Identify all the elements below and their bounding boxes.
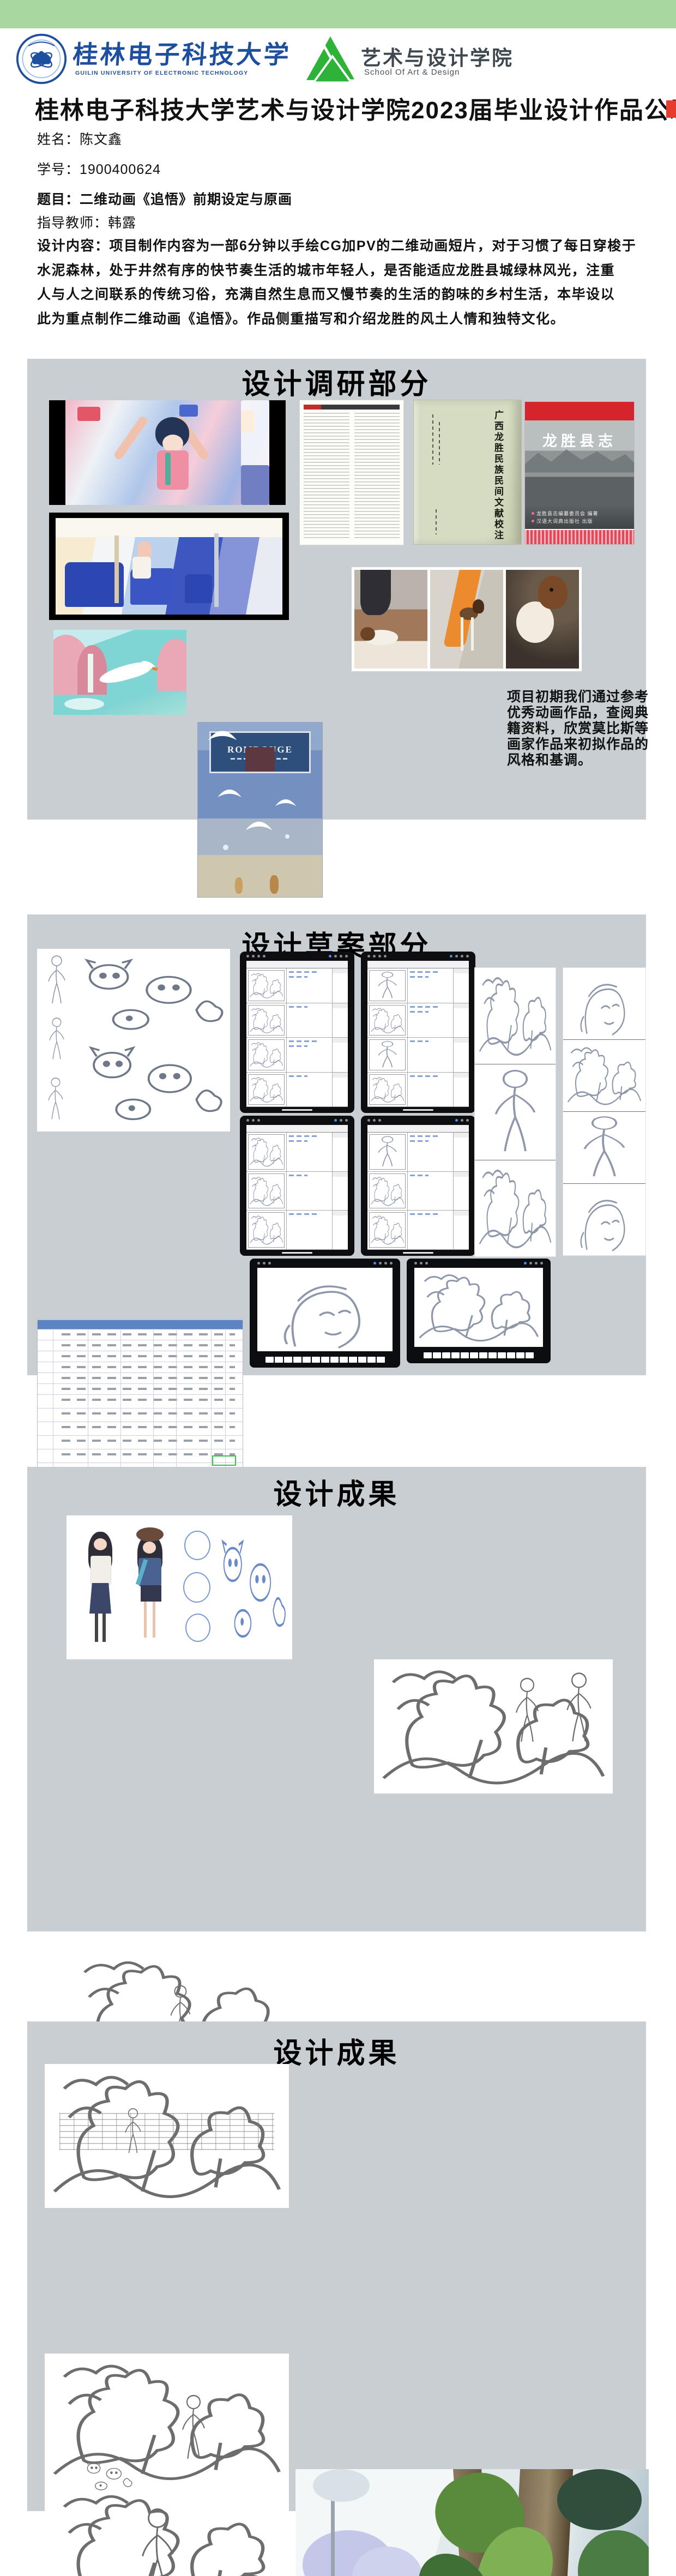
page-title: 桂林电子科技大学艺术与设计学院2023届毕业设计作品公示	[35, 91, 676, 125]
design-description: 设计内容：项目制作内容为一部6分钟以手绘CG加PV的二维动画短片，对于习惯了每日…	[37, 234, 672, 331]
lineart-street-crowd	[374, 1659, 613, 1793]
red-book-cover: 龙胜县志 龙胜县志编纂委员会 编著 汉语大词典出版社 出版	[524, 401, 635, 545]
drawing-tablet	[250, 1259, 400, 1368]
description-line: 水泥森林，处于井然有序的快节奏生活的城市年轻人，是否能适应龙胜县城绿林风光，注重	[37, 258, 672, 283]
section-title: 设计成果	[27, 1471, 646, 1512]
anime-girl-video-still	[49, 400, 286, 505]
university-emblem-icon	[15, 33, 68, 85]
romrouge-poster: ROMROUGE	[197, 722, 323, 898]
storyboard-comic-strip	[474, 967, 556, 1257]
color-art-big-tree	[295, 2469, 649, 2576]
lineart-mountain-path-girl-dog	[45, 2354, 289, 2576]
table-highlight-cell	[212, 1455, 236, 1466]
red-book-title: 龙胜县志	[525, 429, 634, 450]
university-name-zh: 桂林电子科技大学	[72, 35, 293, 71]
student-name: 姓名：陈文鑫	[37, 129, 122, 148]
drawing-tablet	[407, 1259, 551, 1363]
advisor-name: 指导教师：韩露	[37, 212, 136, 232]
red-book-credit: 龙胜县志编纂委员会 编著	[532, 510, 599, 517]
beagle-photo	[506, 570, 579, 669]
beagle-photo-strip	[352, 567, 582, 671]
description-line: 此为重点制作二维动画《追悟》。作品侧重描写和介绍龙胜的风土人情和独特文化。	[37, 307, 672, 332]
character-sketch-page	[37, 949, 230, 1131]
storyboard-tablet	[240, 1116, 354, 1256]
edge-red-mark	[666, 100, 676, 118]
beagle-photo	[430, 570, 503, 669]
section-research-panel: 设计调研部分	[27, 359, 646, 820]
section-draft-panel: 设计草案部分	[27, 914, 646, 1375]
crane-illustration	[53, 630, 186, 715]
research-note: 项目初期我们通过参考 优秀动画作品，查阅典 籍资料，欣赏莫比斯等 画家作品来初拟…	[507, 689, 666, 768]
student-id: 学号：1900400624	[37, 159, 161, 178]
green-book-cover: 广西龙胜民族民间文献校注	[413, 400, 522, 545]
beagle-photo	[354, 570, 427, 669]
newspaper-scan	[299, 400, 404, 545]
storyboard-tablet	[361, 1116, 475, 1256]
storyboard-tablet	[240, 952, 354, 1113]
storyboard-comic-strip	[563, 967, 646, 1256]
section-title: 设计调研部分	[27, 361, 646, 402]
university-name-en: GUILIN UNIVERSITY OF ELECTRONIC TECHNOLO…	[75, 70, 248, 76]
section-results-panel-2: 设计成果	[27, 2021, 646, 2511]
school-name-zh: 艺术与设计学院	[361, 41, 514, 71]
red-book-credit: 汉语大词典出版社 出版	[532, 517, 593, 525]
lineart-bridge-pavilion	[45, 2064, 289, 2208]
green-book-title: 广西龙胜民族民间文献校注	[491, 410, 505, 541]
description-line: 设计内容：项目制作内容为一部6分钟以手绘CG加PV的二维动画短片，对于习惯了每日…	[37, 234, 672, 258]
train-interior-video-still	[49, 513, 289, 620]
section-results-panel-1: 设计成果	[27, 1467, 646, 1931]
school-name-en: School Of Art & Design	[364, 68, 460, 77]
storyboard-tablet	[361, 952, 475, 1113]
top-green-bar	[0, 0, 676, 28]
description-line: 人与人之间联系的传统习俗，充满自然生息而又慢节奏的生活的韵味的乡村生活，本毕设以	[37, 282, 672, 307]
design-topic: 题目：二维动画《追悟》前期设定与原画	[37, 189, 292, 208]
art-school-logo-icon	[303, 35, 355, 84]
graduation-poster-page: 桂林电子科技大学 GUILIN UNIVERSITY OF ELECTRONIC…	[0, 0, 676, 2576]
character-design-sheet	[67, 1515, 292, 1659]
